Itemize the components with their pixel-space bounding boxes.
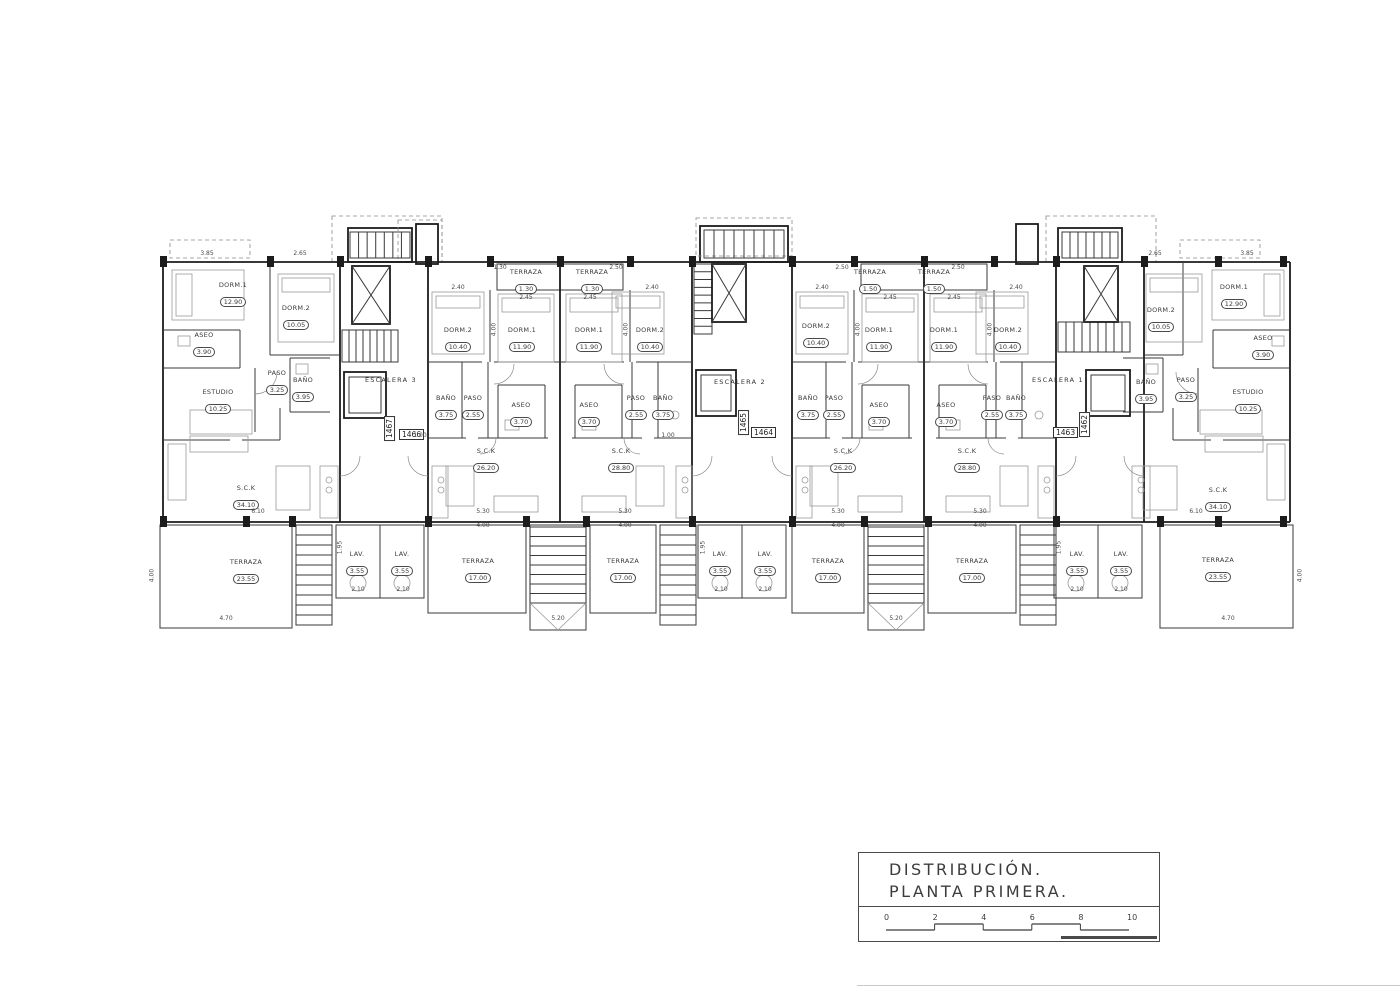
scale-tick-label: 10 bbox=[1127, 913, 1137, 922]
drawing-sheet: DORM.112.90DORM.210.05ASEO3.90PASO3.25BA… bbox=[0, 0, 1400, 989]
scale-tick-label: 2 bbox=[933, 913, 938, 922]
scale-bar-thick-line bbox=[1061, 936, 1157, 939]
title-block: DISTRIBUCIÓN. PLANTA PRIMERA. 0246810 bbox=[858, 852, 1160, 942]
sheet-edge-line bbox=[857, 985, 1400, 986]
scale-tick-label: 6 bbox=[1030, 913, 1035, 922]
floor-plan-svg bbox=[0, 0, 1400, 989]
title-line-2: PLANTA PRIMERA. bbox=[889, 882, 1069, 901]
scale-tick-label: 8 bbox=[1078, 913, 1083, 922]
scale-tick-label: 0 bbox=[884, 913, 889, 922]
scale-tick-label: 4 bbox=[981, 913, 986, 922]
title-line-1: DISTRIBUCIÓN. bbox=[889, 860, 1043, 879]
